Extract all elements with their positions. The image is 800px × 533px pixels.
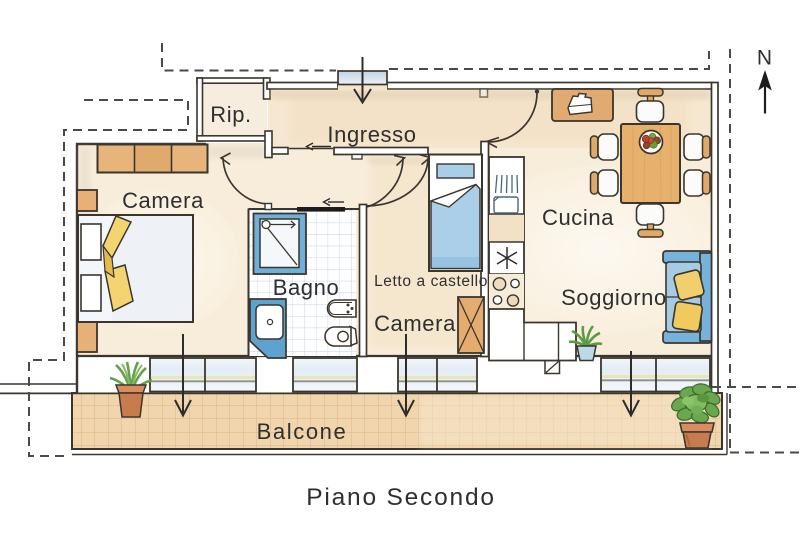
svg-text:Piano Secondo: Piano Secondo — [306, 484, 496, 511]
svg-text:Bagno: Bagno — [273, 275, 340, 300]
svg-text:Cucina: Cucina — [542, 205, 614, 230]
svg-text:Soggiorno: Soggiorno — [561, 285, 667, 310]
svg-text:Balcone: Balcone — [257, 419, 348, 444]
svg-text:N: N — [757, 47, 772, 70]
svg-text:Rip.: Rip. — [210, 102, 252, 127]
svg-text:Camera: Camera — [122, 188, 204, 213]
svg-text:Letto a castello: Letto a castello — [374, 273, 488, 290]
svg-text:Camera: Camera — [374, 311, 456, 336]
svg-text:Ingresso: Ingresso — [327, 122, 416, 147]
